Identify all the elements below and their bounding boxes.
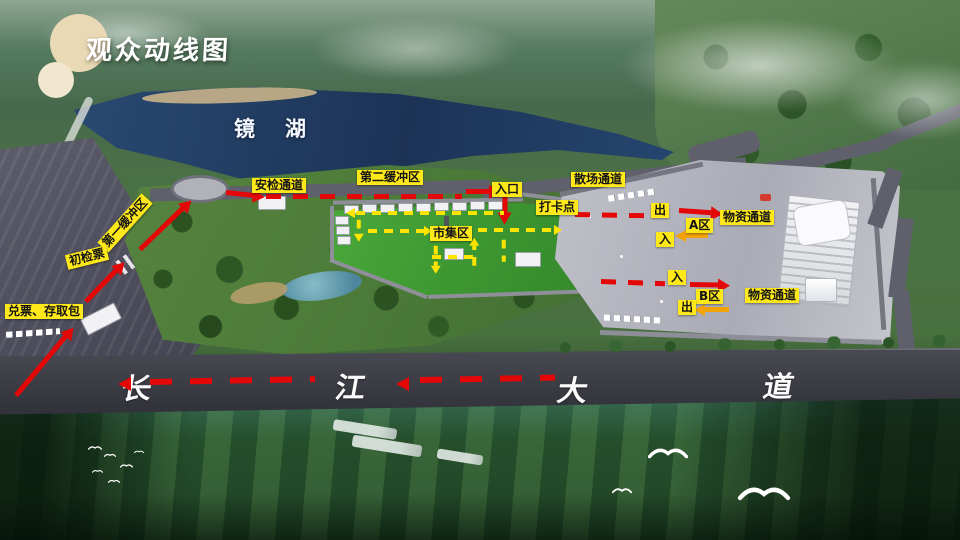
label-zone-a-in: 入 [656, 232, 674, 247]
supply-route-arrow [685, 233, 708, 238]
farmland [0, 396, 960, 540]
market-route-dash [478, 228, 554, 232]
bird-icon [736, 482, 792, 502]
lake-name: 镜湖 [234, 113, 336, 143]
page-title: 观众动线图 [85, 30, 232, 67]
red-route-dash [266, 194, 462, 199]
market-route-dash [502, 240, 506, 262]
label-zone-a: A区 [686, 218, 713, 233]
label-entrance: 入口 [492, 182, 522, 197]
backstage-tent [805, 278, 837, 302]
label-zone-b-in: 入 [668, 270, 686, 285]
label-zone-b-out: 出 [678, 300, 696, 315]
label-security-channel: 安检通道 [252, 178, 306, 193]
bird-icon [92, 468, 103, 474]
market-route-dash [368, 229, 424, 233]
label-dispersal-channel: 散场通道 [571, 172, 625, 187]
label-zone-a-supply-channel: 物资通道 [720, 210, 774, 225]
bird-icon [648, 444, 688, 460]
roundabout [174, 178, 226, 200]
red-arrowhead-left [118, 377, 131, 391]
label-market-zone: 市集区 [430, 226, 472, 241]
market-arrowhead-left [346, 208, 355, 218]
person-dot [660, 300, 663, 303]
bird-icon [612, 486, 632, 494]
red-route-arrow [690, 282, 719, 288]
bird-icon [108, 478, 120, 484]
market-wall [330, 206, 334, 262]
title-deco-circle [38, 62, 74, 98]
supply-route-arrow [704, 307, 729, 312]
bird-icon [88, 444, 102, 451]
audience-flow-map-slide: 长 江 大 道 安检通道 第二缓冲区 入口 散场通道 打卡点 市集区 [0, 0, 960, 540]
label-zone-b: B区 [696, 289, 723, 304]
bird-icon [120, 462, 133, 469]
market-route-dash [357, 220, 361, 234]
market-route-dash [356, 211, 504, 215]
truck [760, 194, 771, 201]
person-dot [620, 255, 623, 258]
red-arrowhead-left [396, 377, 409, 391]
fog-overlay [310, 18, 520, 80]
red-route-arrow [466, 189, 490, 194]
bird-icon [104, 452, 116, 458]
market-route-dash [432, 255, 478, 259]
label-buffer-zone-2: 第二缓冲区 [357, 170, 423, 185]
label-ticket-exchange-bag-storage: 兑票、存取包 [5, 304, 83, 319]
label-zone-a-out: 出 [651, 203, 669, 218]
bird-icon [134, 449, 144, 454]
label-zone-b-supply-channel: 物资通道 [745, 288, 799, 303]
label-checkin-point: 打卡点 [536, 200, 578, 215]
